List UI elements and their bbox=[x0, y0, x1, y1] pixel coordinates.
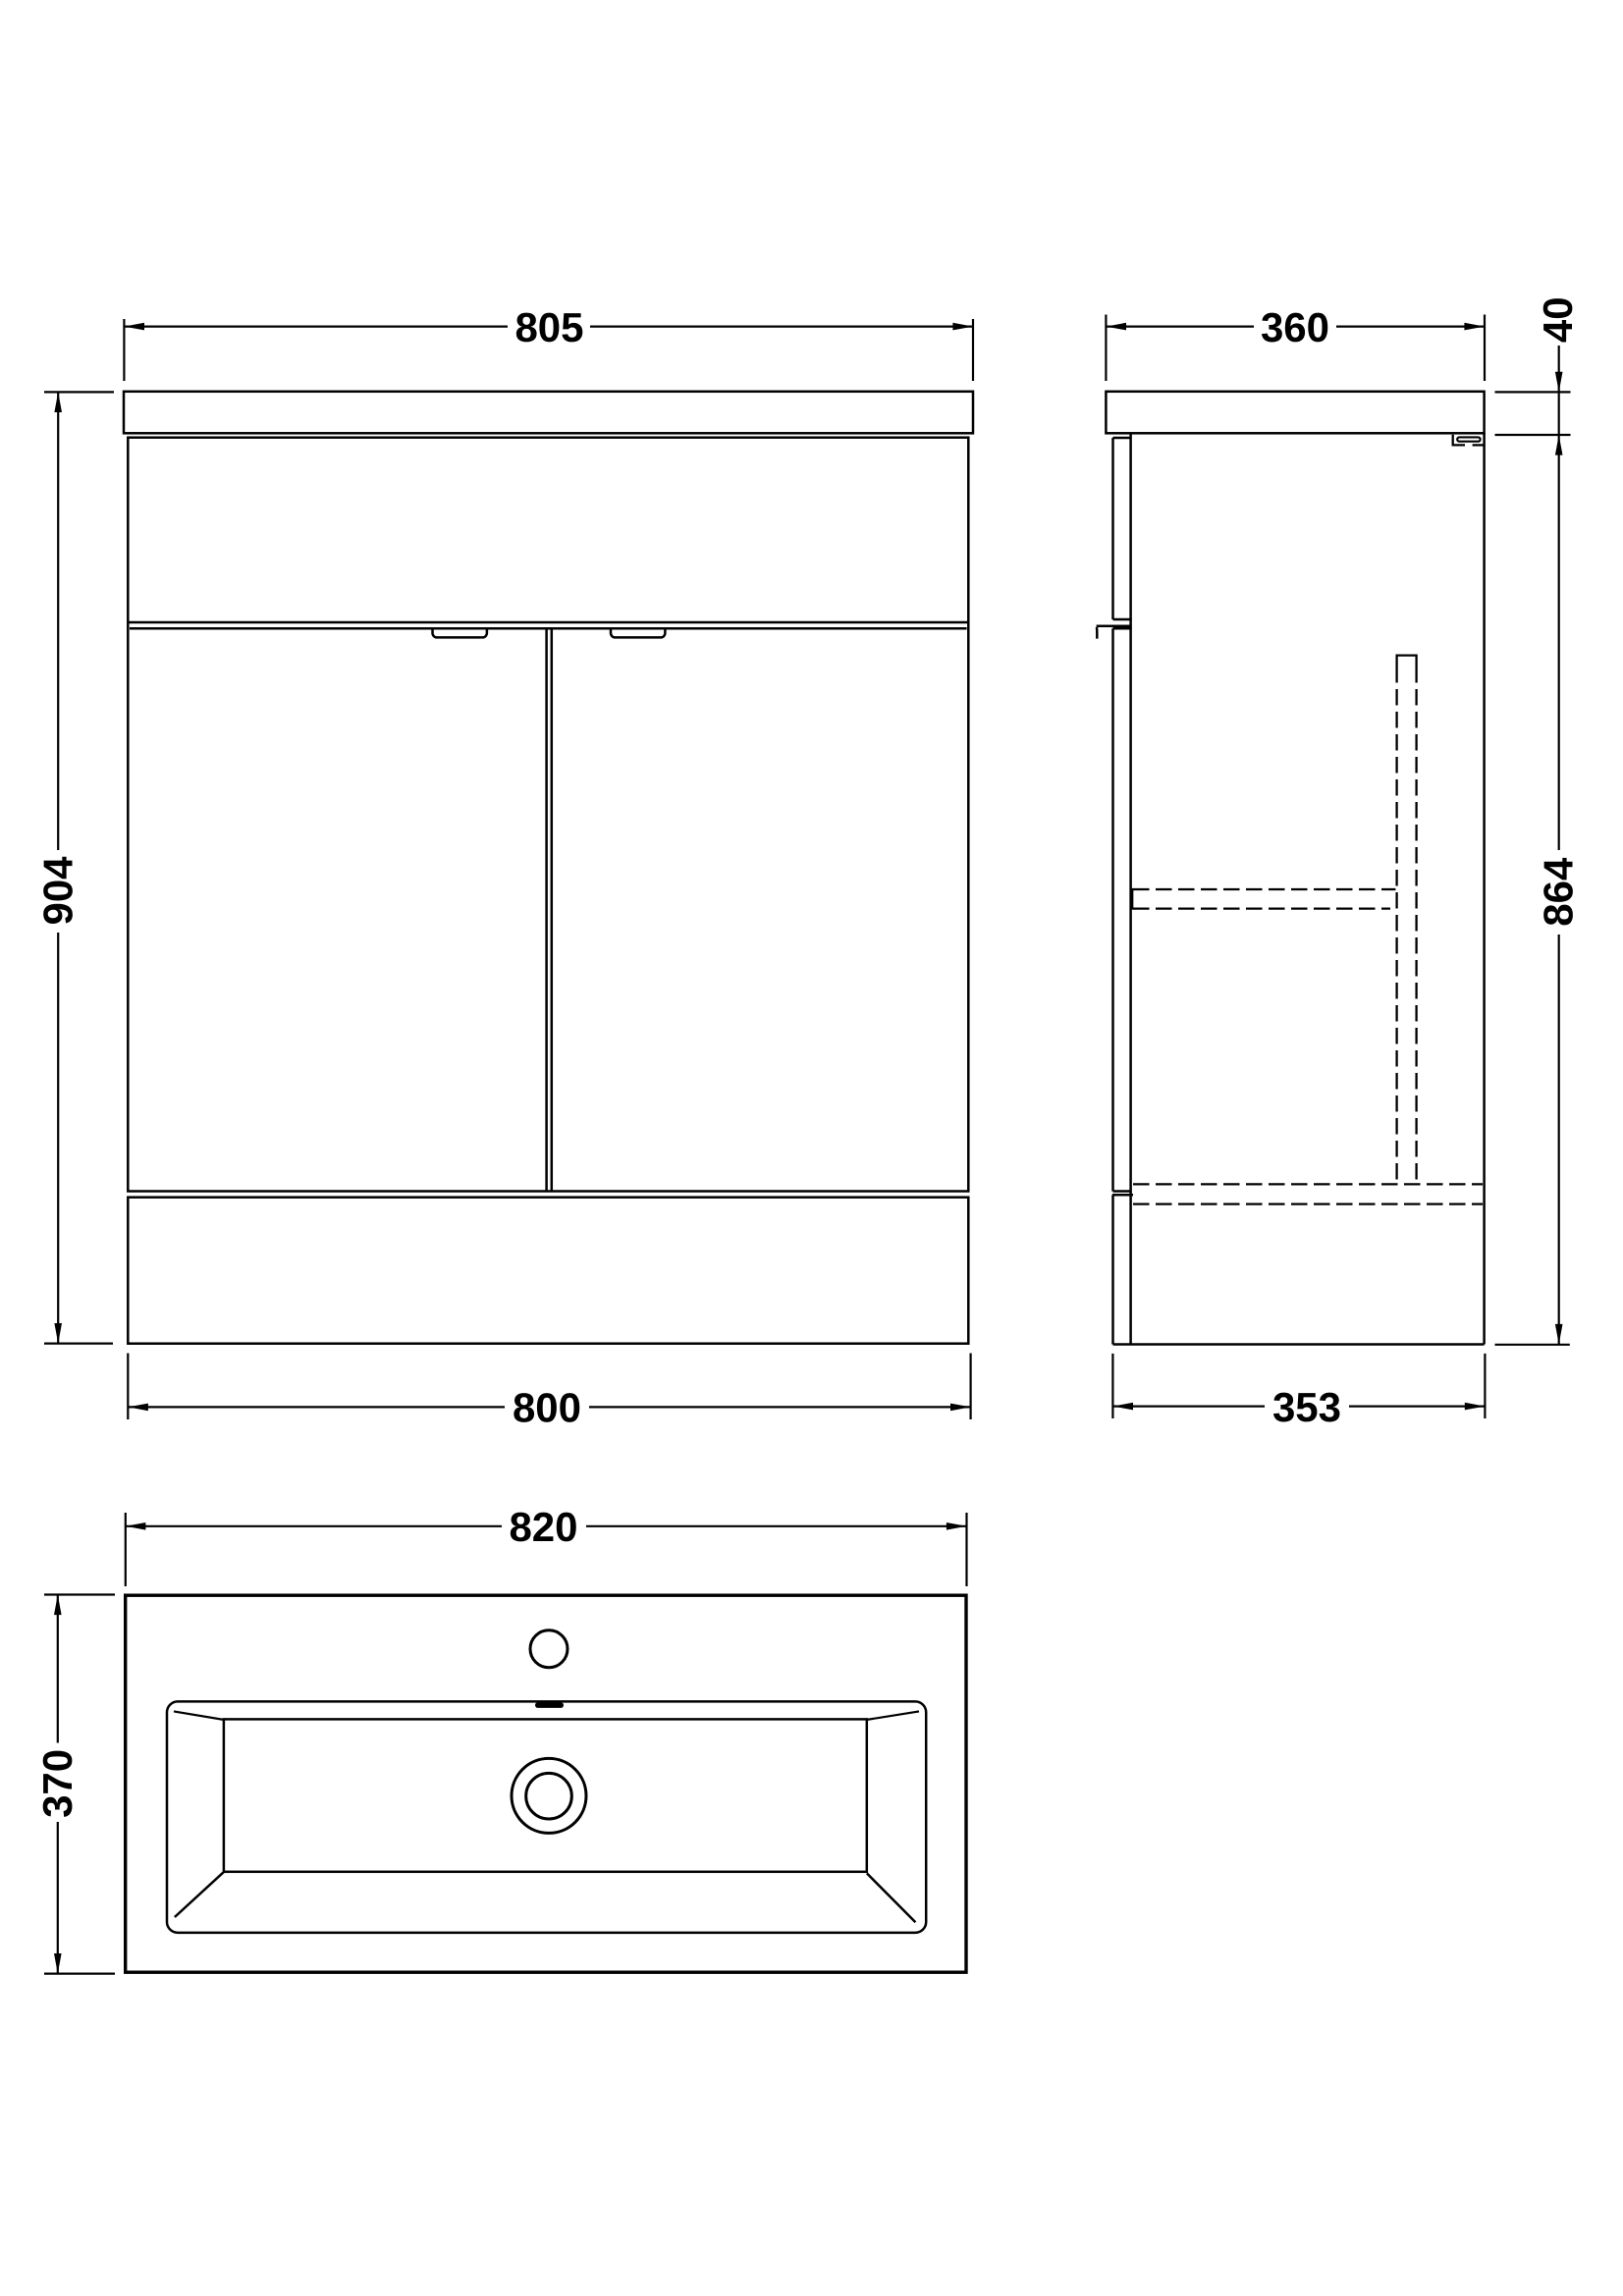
svg-text:370: 370 bbox=[34, 1749, 81, 1818]
svg-text:904: 904 bbox=[35, 856, 81, 926]
svg-text:360: 360 bbox=[1261, 304, 1329, 350]
svg-text:800: 800 bbox=[513, 1385, 581, 1431]
svg-text:864: 864 bbox=[1535, 857, 1581, 927]
svg-text:805: 805 bbox=[514, 304, 583, 350]
svg-text:820: 820 bbox=[509, 1504, 577, 1550]
svg-text:40: 40 bbox=[1535, 296, 1581, 343]
svg-text:353: 353 bbox=[1272, 1384, 1341, 1430]
